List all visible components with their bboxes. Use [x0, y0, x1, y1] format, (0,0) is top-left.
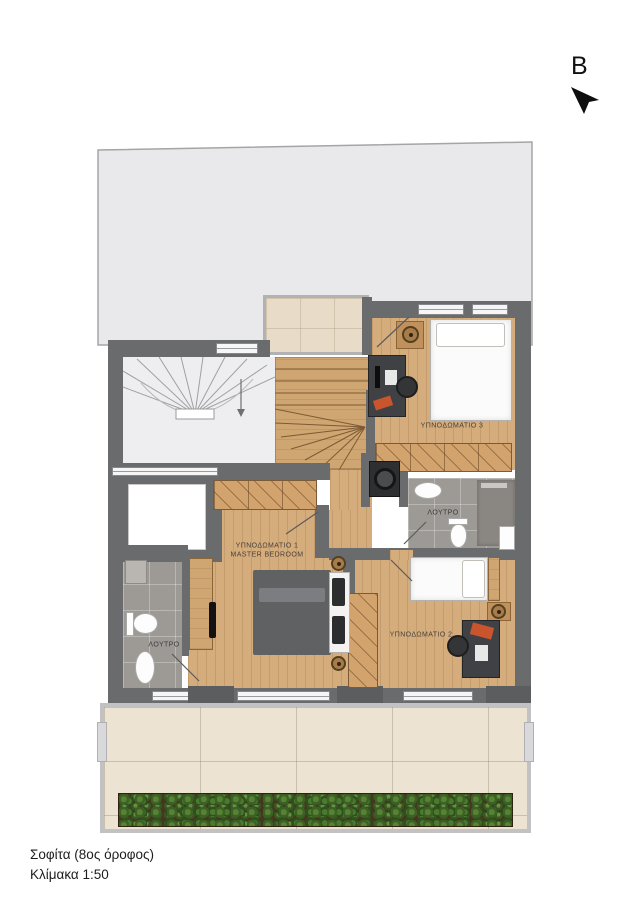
headboard-bedroom2	[488, 557, 500, 601]
floor-plan-page: B	[0, 0, 640, 905]
nightstand-master-1	[331, 556, 346, 571]
lamp-bedroom3-icon	[402, 326, 419, 343]
bedroom3-label: ΥΠΝΟΔΩΜΑΤΙΟ 3	[421, 421, 484, 430]
shower-door-upper	[499, 526, 515, 550]
master-pillow-1	[332, 578, 345, 606]
bathroom-lower-label: ΛΟΥΤΡΟ	[148, 640, 179, 649]
plan-title: Σοφίτα (8ος όροφος)	[30, 847, 154, 862]
master-door-jamb	[315, 505, 329, 558]
door-south-bedroom2	[403, 691, 473, 701]
bathroom-upper-label: ΛΟΥΤΡΟ	[427, 508, 458, 517]
compass-label: B	[571, 52, 588, 81]
door-south-master	[237, 691, 330, 701]
shower-lower	[125, 560, 147, 584]
window-bedroom3-a	[418, 304, 464, 315]
nightstand-master-2	[331, 656, 346, 671]
wardrobe-master-top	[213, 480, 317, 510]
toilet-upper-icon	[450, 524, 467, 548]
window-south-1	[152, 691, 190, 701]
double-bed-master	[253, 570, 331, 655]
stair-void	[128, 484, 206, 550]
pillow-bedroom2	[462, 560, 485, 598]
master-bedroom-label: ΥΠΝΟΔΩΜΑΤΙΟ 1 MASTER BEDROOM	[231, 542, 304, 561]
east-wall	[515, 301, 531, 708]
pillow-bedroom3	[436, 323, 505, 347]
towel-rail-icon	[481, 483, 507, 488]
bedroom2-label: ΥΠΝΟΔΩΜΑΤΙΟ 2	[390, 630, 453, 639]
window-north	[216, 343, 258, 354]
toilet-lower-icon	[133, 613, 158, 634]
bathroom-lower-right-wall	[182, 556, 189, 656]
window-bedroom3-b	[472, 304, 508, 315]
office-chair-bedroom3	[396, 376, 418, 398]
fan-staircase	[123, 357, 275, 463]
terrace-notch-left	[97, 722, 107, 762]
sink-lower-icon	[135, 651, 155, 684]
north-arrow-icon	[560, 80, 610, 122]
sink-upper-icon	[414, 482, 442, 499]
planter-hedge	[118, 793, 513, 827]
tv-icon	[209, 602, 216, 638]
master-pillow-2	[332, 616, 345, 644]
balcony-niche	[263, 295, 369, 355]
washing-machine-icon	[369, 461, 400, 497]
winder-staircase	[275, 357, 372, 470]
plan-scale: Κλίμακα 1:50	[30, 867, 109, 882]
lamp-bedroom2-icon	[491, 604, 506, 619]
void-skylight	[112, 467, 218, 476]
terrace-notch-right	[524, 722, 534, 762]
wardrobe-bedroom2	[348, 593, 378, 688]
bathroom-lower-top-wall	[108, 545, 188, 558]
